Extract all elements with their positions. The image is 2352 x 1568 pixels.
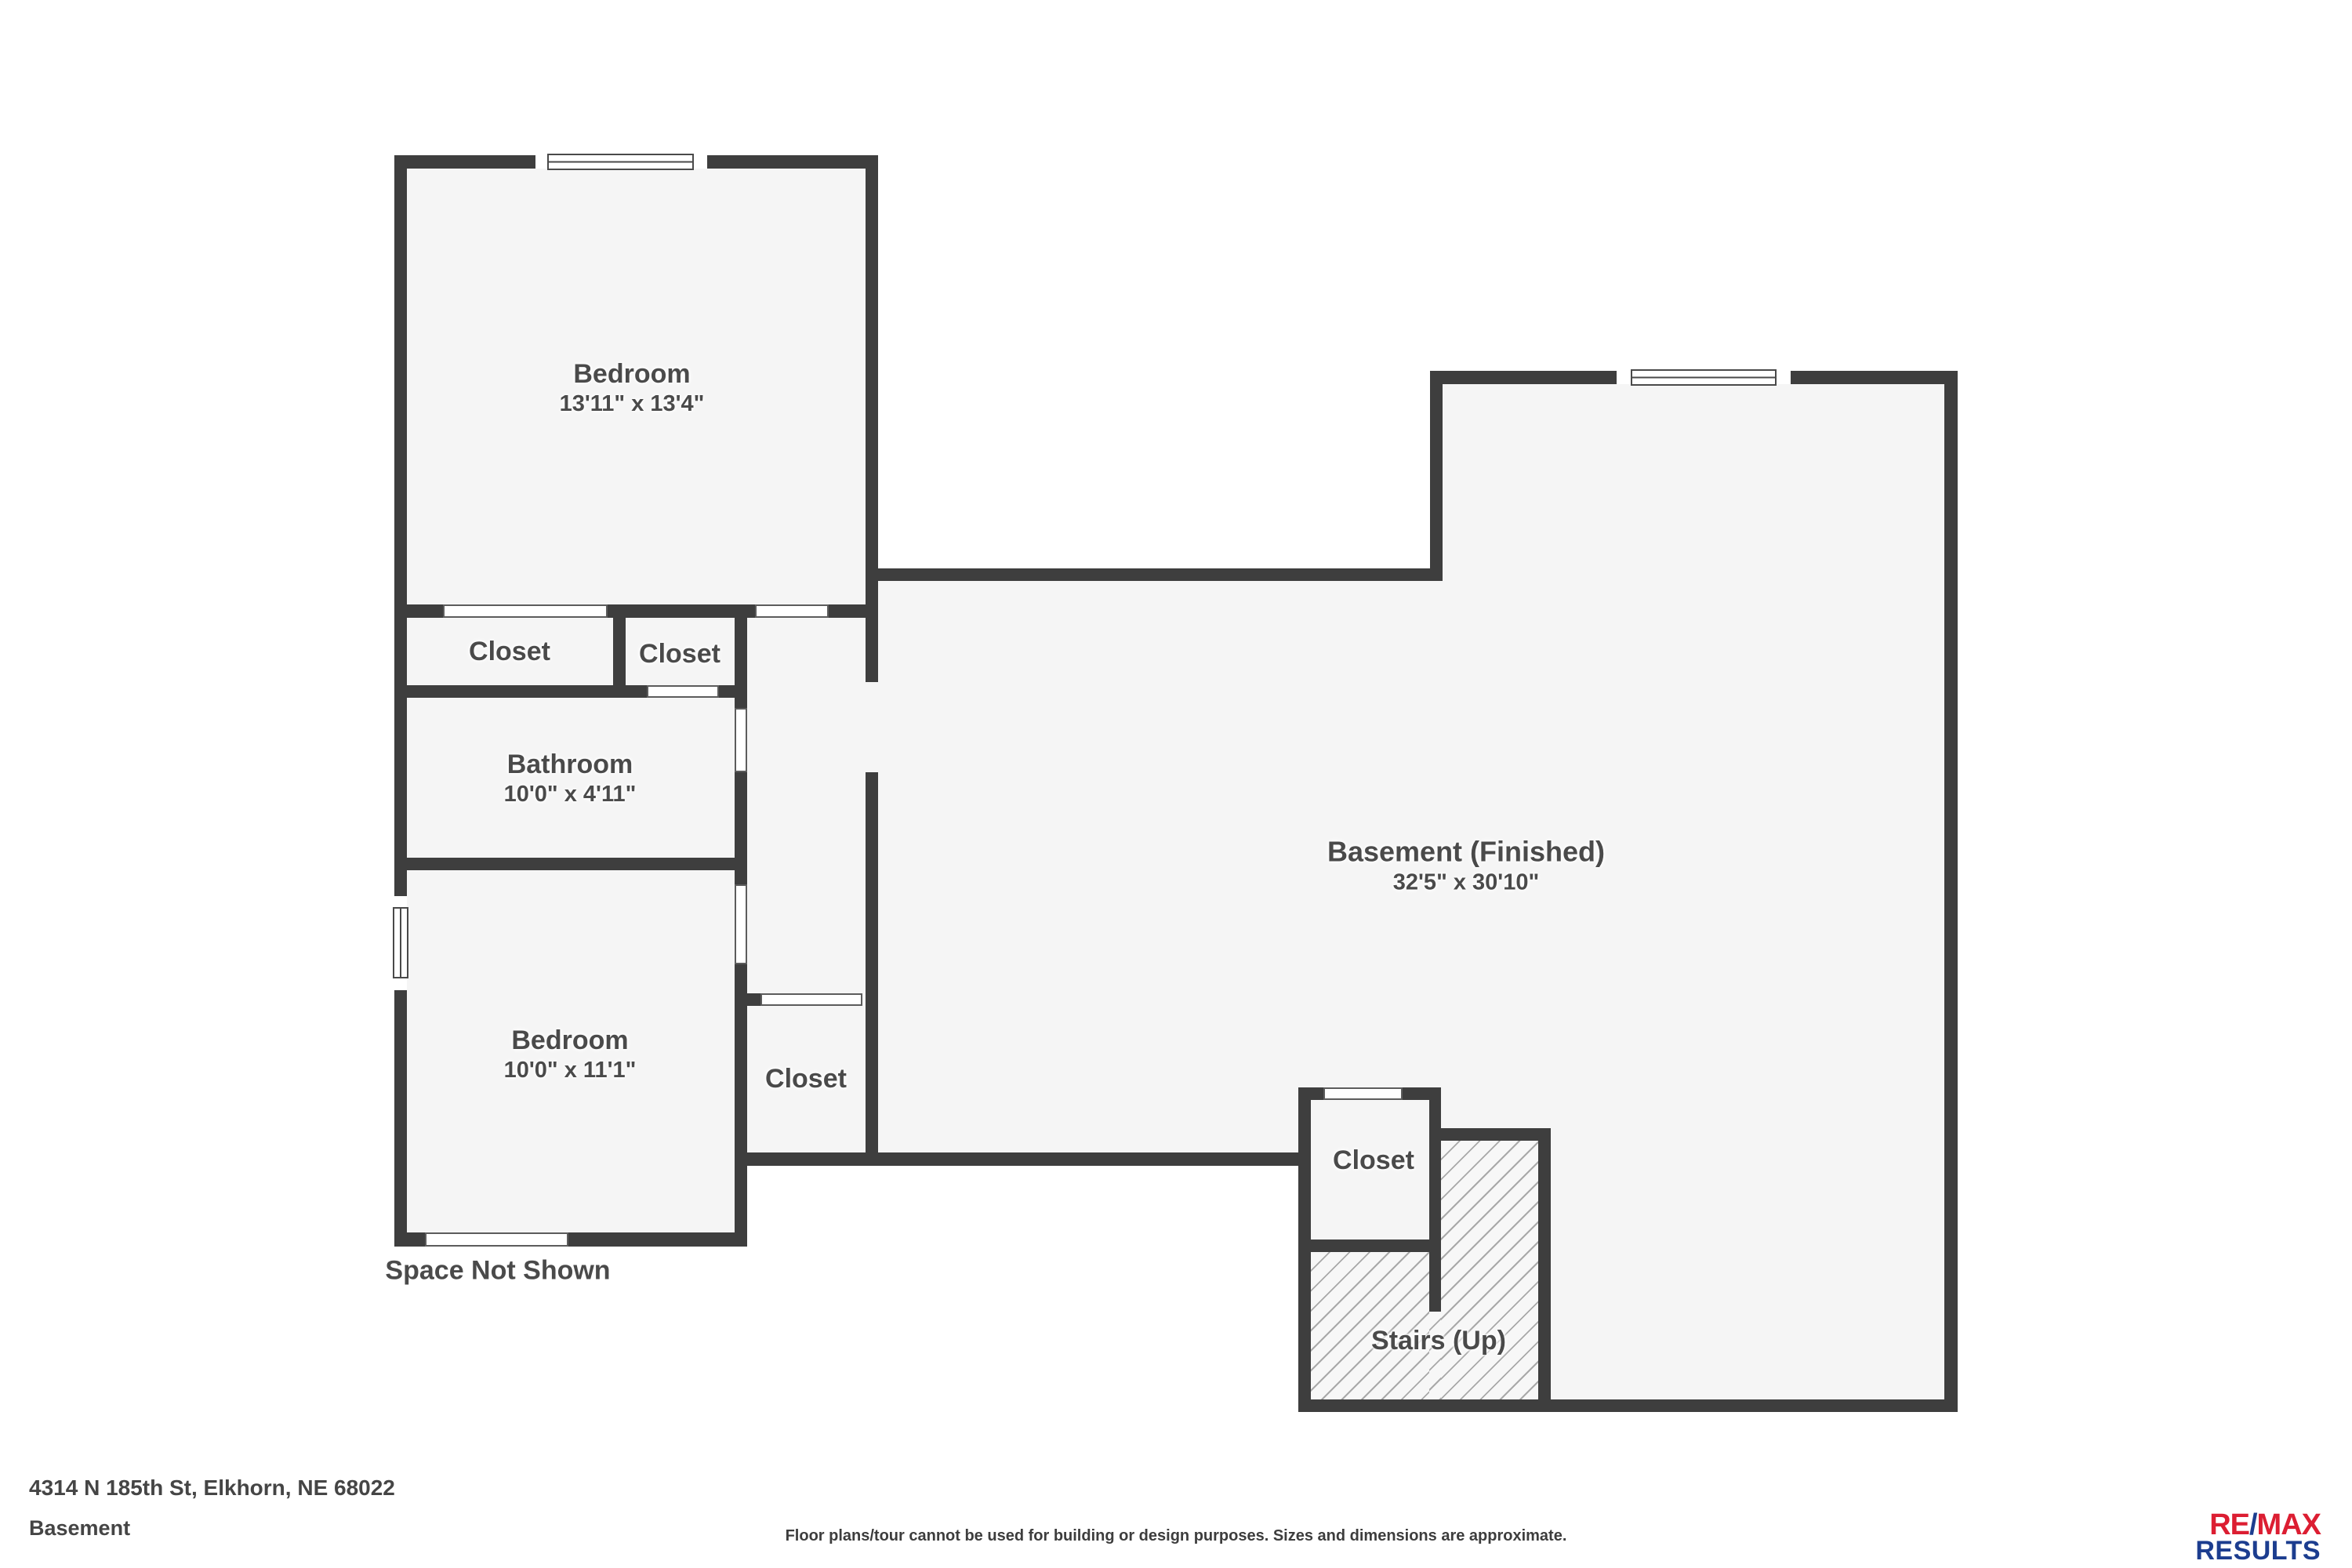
room-label-stairs: Stairs (Up) bbox=[1371, 1325, 1506, 1356]
wall bbox=[568, 1232, 747, 1247]
wall bbox=[866, 155, 878, 682]
floor-plan-page: Bedroom 13'11" x 13'4" Closet Closet Bat… bbox=[0, 0, 2352, 1568]
wall bbox=[394, 685, 647, 698]
room-label-bedroom1: Bedroom 13'11" x 13'4" bbox=[560, 358, 705, 418]
wall bbox=[735, 618, 747, 708]
wall bbox=[1430, 371, 1443, 581]
wall bbox=[747, 993, 760, 1006]
wall bbox=[613, 618, 626, 685]
wall bbox=[394, 1232, 425, 1247]
room-fill-basement-upper bbox=[1430, 371, 1958, 581]
wall bbox=[1298, 1399, 1958, 1412]
door-opening bbox=[735, 708, 747, 772]
door-opening bbox=[647, 685, 719, 698]
remax-logo-line1: RE/MAX bbox=[2195, 1512, 2321, 1539]
remax-logo-line2: RESULTS bbox=[2195, 1539, 2321, 1563]
room-label-closet-left: Closet bbox=[469, 636, 550, 667]
room-label-bathroom: Bathroom 10'0" x 4'11" bbox=[504, 749, 637, 808]
wall bbox=[608, 604, 755, 618]
window bbox=[547, 154, 694, 170]
door-opening bbox=[760, 993, 862, 1006]
wall bbox=[1429, 1087, 1441, 1312]
wall bbox=[394, 858, 735, 870]
room-label-closet-right: Closet bbox=[639, 638, 720, 670]
wall bbox=[747, 1152, 1311, 1166]
disclaimer-text: Floor plans/tour cannot be used for buil… bbox=[0, 1527, 2352, 1545]
wall bbox=[394, 604, 443, 618]
property-address: 4314 N 185th St, Elkhorn, NE 68022 bbox=[29, 1475, 395, 1501]
remax-results-logo: RE/MAX RESULTS bbox=[2195, 1512, 2321, 1563]
wall bbox=[394, 155, 535, 169]
room-label-closet-middle: Closet bbox=[765, 1063, 847, 1094]
space-not-shown-note: Space Not Shown bbox=[385, 1256, 610, 1287]
wall bbox=[1791, 371, 1958, 384]
wall bbox=[1298, 1087, 1311, 1412]
wall bbox=[1944, 371, 1958, 1412]
room-label-closet-stairs: Closet bbox=[1333, 1145, 1414, 1176]
door-opening bbox=[443, 604, 608, 618]
door-opening bbox=[1323, 1087, 1403, 1100]
wall bbox=[735, 772, 747, 884]
wall bbox=[1430, 371, 1617, 384]
wall bbox=[394, 990, 407, 1247]
wall bbox=[394, 155, 407, 896]
stairs-hatch-right bbox=[1441, 1141, 1538, 1399]
wall bbox=[707, 155, 878, 169]
wall bbox=[1441, 1128, 1538, 1141]
wall bbox=[866, 568, 1443, 581]
door-opening bbox=[735, 884, 747, 964]
window bbox=[1631, 369, 1777, 386]
room-label-basement: Basement (Finished) 32'5" x 30'10" bbox=[1327, 836, 1605, 898]
room-fill-hallway-column bbox=[747, 155, 878, 1166]
wall bbox=[735, 964, 747, 1247]
door-opening bbox=[755, 604, 829, 618]
wall bbox=[1311, 1240, 1441, 1252]
room-label-bedroom2: Bedroom 10'0" x 11'1" bbox=[504, 1025, 637, 1084]
window bbox=[393, 907, 408, 978]
door-opening bbox=[425, 1232, 568, 1247]
wall bbox=[866, 772, 878, 1166]
wall bbox=[1298, 1087, 1323, 1100]
wall bbox=[1538, 1128, 1551, 1412]
